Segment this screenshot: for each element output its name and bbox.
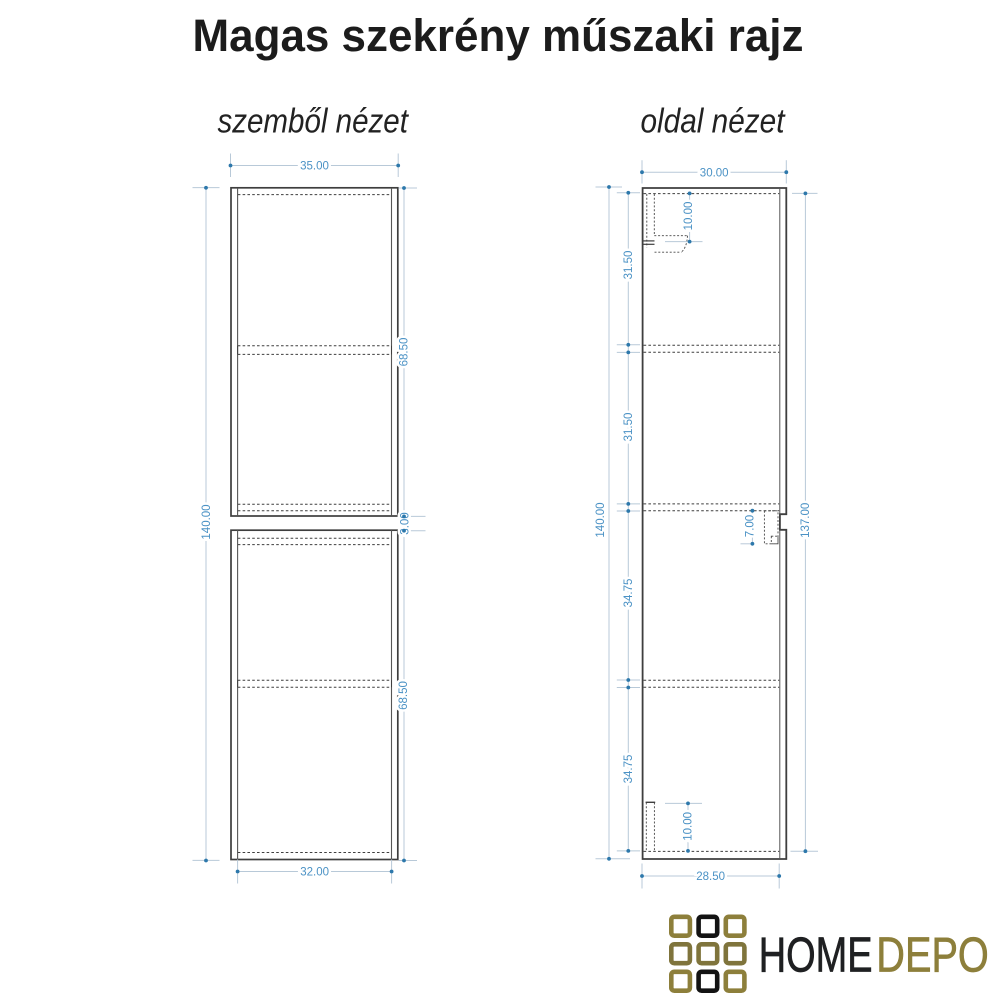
svg-text:31.50: 31.50: [623, 413, 635, 442]
svg-text:34.75: 34.75: [623, 755, 635, 784]
svg-text:140.00: 140.00: [201, 504, 213, 539]
svg-text:DEPO: DEPO: [876, 928, 989, 982]
svg-text:oldal nézet: oldal nézet: [641, 103, 786, 141]
svg-text:68.50: 68.50: [399, 338, 411, 367]
svg-text:HOME: HOME: [759, 928, 873, 982]
svg-text:32.00: 32.00: [300, 867, 329, 879]
svg-text:34.75: 34.75: [623, 579, 635, 608]
svg-text:35.00: 35.00: [300, 161, 329, 173]
svg-text:30.00: 30.00: [700, 167, 729, 179]
svg-text:140.00: 140.00: [595, 502, 607, 537]
svg-text:68.50: 68.50: [398, 681, 410, 710]
svg-text:31.50: 31.50: [623, 251, 635, 280]
svg-text:28.50: 28.50: [696, 871, 725, 883]
svg-text:10.00: 10.00: [683, 202, 695, 231]
svg-text:Magas szekrény műszaki rajz: Magas szekrény műszaki rajz: [193, 10, 804, 61]
svg-text:137.00: 137.00: [800, 503, 812, 538]
svg-text:7.00: 7.00: [745, 515, 757, 537]
svg-text:szemből nézet: szemből nézet: [217, 103, 409, 141]
svg-text:10.00: 10.00: [683, 812, 695, 841]
